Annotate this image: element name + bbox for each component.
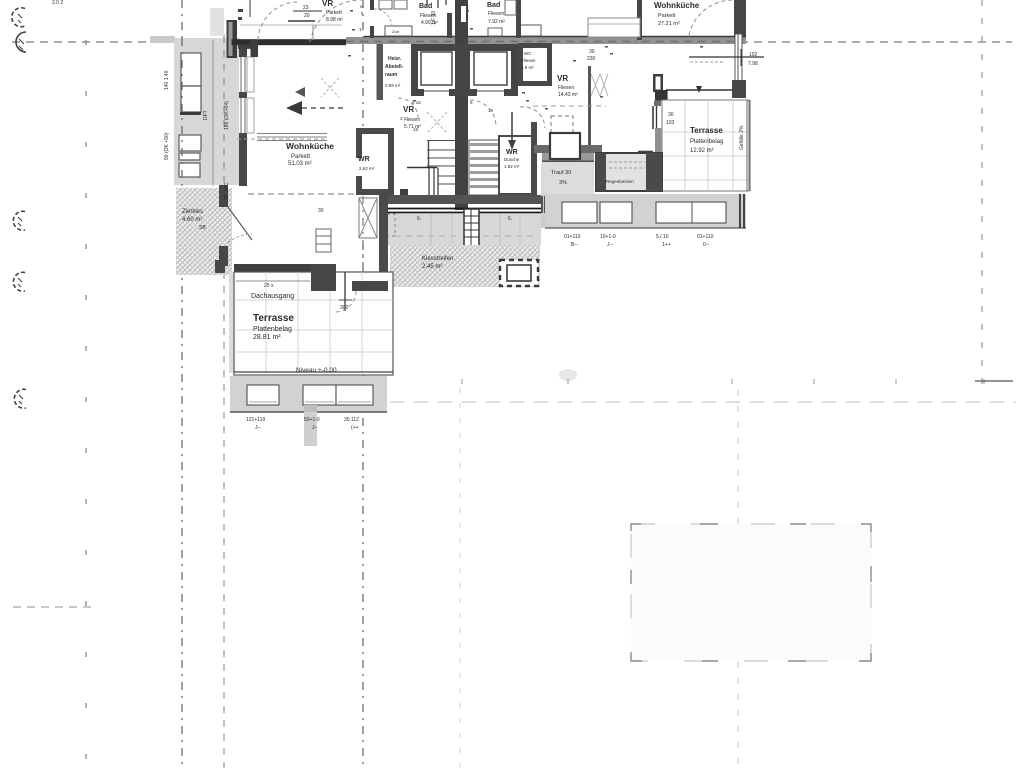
svg-text:Parkett: Parkett [658,13,676,19]
svg-text:raum: raum [385,72,398,78]
svg-text:14.43 m²: 14.43 m² [558,92,578,98]
svg-text:Zierkies: Zierkies [182,209,203,215]
svg-text:1 F 10: 1 F 10 [431,11,437,25]
svg-text:7.92 m²: 7.92 m² [488,19,505,25]
svg-text:121+110: 121+110 [246,417,265,423]
svg-text:5.71 m²: 5.71 m² [404,124,421,130]
svg-text:Bad: Bad [487,2,500,9]
svg-text:Wohnküche: Wohnküche [654,1,700,10]
svg-text:0--: 0-- [703,242,709,248]
svg-text:Plattenbelag: Plattenbelag [253,326,292,333]
svg-text:WC: WC [524,51,532,56]
svg-text:30: 30 [668,112,674,118]
svg-text:Abstell-: Abstell- [385,64,404,70]
svg-text:23: 23 [303,5,309,11]
svg-text:2.9 m²: 2.9 m² [521,65,534,70]
svg-text:30.112: 30.112 [344,417,359,423]
svg-text:Heizr.: Heizr. [388,56,402,62]
svg-text:140 1.40: 140 1.40 [164,70,170,90]
svg-text:2.62 m²: 2.62 m² [359,166,375,171]
svg-text:Fliesen: Fliesen [404,117,420,123]
svg-text:SB: SB [199,225,206,231]
svg-text:DFT: DFT [203,110,209,120]
svg-text:7.98: 7.98 [748,61,758,67]
svg-text:VR: VR [403,105,414,114]
svg-text:Fliesen: Fliesen [521,58,536,63]
svg-text:Kiesstreifen: Kiesstreifen [422,256,453,262]
svg-text:(++: (++ [351,425,359,431]
svg-text:J--: J-- [255,425,261,431]
svg-text:90 (OK +90): 90 (OK +90) [164,132,170,160]
svg-text:01+110: 01+110 [564,234,581,240]
svg-text:Parkett: Parkett [291,154,310,160]
svg-text:Dusche: Dusche [504,157,520,162]
svg-text:30: 30 [318,208,324,214]
svg-text:27.21 m²: 27.21 m² [658,21,680,27]
svg-text:5./.10: 5./.10 [656,234,669,240]
svg-text:50+1-0: 50+1-0 [304,417,320,423]
svg-text:8.98 m²: 8.98 m² [326,17,343,23]
svg-text:Plattenbelag: Plattenbelag [690,139,723,145]
svg-text:20: 20 [304,13,310,19]
svg-text:6.: 6. [508,216,512,222]
svg-text:B--: B-- [571,242,578,248]
svg-text:1++: 1++ [662,242,671,248]
svg-text:Zub: Zub [392,29,400,34]
svg-text:25 x: 25 x [264,283,274,289]
svg-text:Trauf 30: Trauf 30 [551,170,571,176]
svg-text:3%: 3% [559,180,567,186]
svg-text:Terrasse: Terrasse [253,313,294,324]
svg-text:36, 14C: 36, 14C [224,182,230,200]
svg-text:Fliesen: Fliesen [558,85,574,91]
svg-text:6.: 6. [417,216,421,222]
svg-text:2.89 m²: 2.89 m² [385,83,401,88]
svg-text:2.0 2: 2.0 2 [52,0,63,6]
svg-text:01+110: 01+110 [697,234,714,240]
svg-text:2.45 m²: 2.45 m² [422,264,442,270]
svg-text:Niveau +-0.00: Niveau +-0.00 [296,367,337,374]
svg-text:102: 102 [749,52,758,58]
svg-text:1.92 m²: 1.92 m² [504,164,520,169]
svg-text:J--: J-- [607,242,613,248]
svg-text:Wohnküche: Wohnküche [286,141,334,151]
svg-text:Terrasse: Terrasse [690,126,723,135]
svg-text:12.92 m²: 12.92 m² [690,148,714,154]
svg-text:VR: VR [322,0,333,8]
svg-text:103: 103 [666,120,675,126]
svg-text:10+1-0: 10+1-0 [600,234,616,240]
svg-text:J--: J-- [312,425,318,431]
svg-text:Gefälle 2%: Gefälle 2% [739,125,745,150]
svg-text:30: 30 [589,49,595,55]
svg-text:Fliesen: Fliesen [488,11,504,17]
svg-text:WR: WR [358,156,370,163]
svg-text:Regenbecken: Regenbecken [606,179,634,184]
svg-text:VR: VR [557,74,568,83]
svg-text:28.81 m²: 28.81 m² [253,334,281,341]
svg-text:230: 230 [587,56,596,62]
svg-text:4.60 m²: 4.60 m² [182,217,202,223]
svg-text:Bad: Bad [419,3,432,10]
svg-text:51.03 m²: 51.03 m² [288,161,312,167]
svg-text:WR: WR [506,149,518,156]
svg-text:186 (OK+04): 186 (OK+04) [224,101,230,130]
svg-text:Parkett: Parkett [326,10,342,16]
svg-text:Dachausgang: Dachausgang [251,293,294,300]
